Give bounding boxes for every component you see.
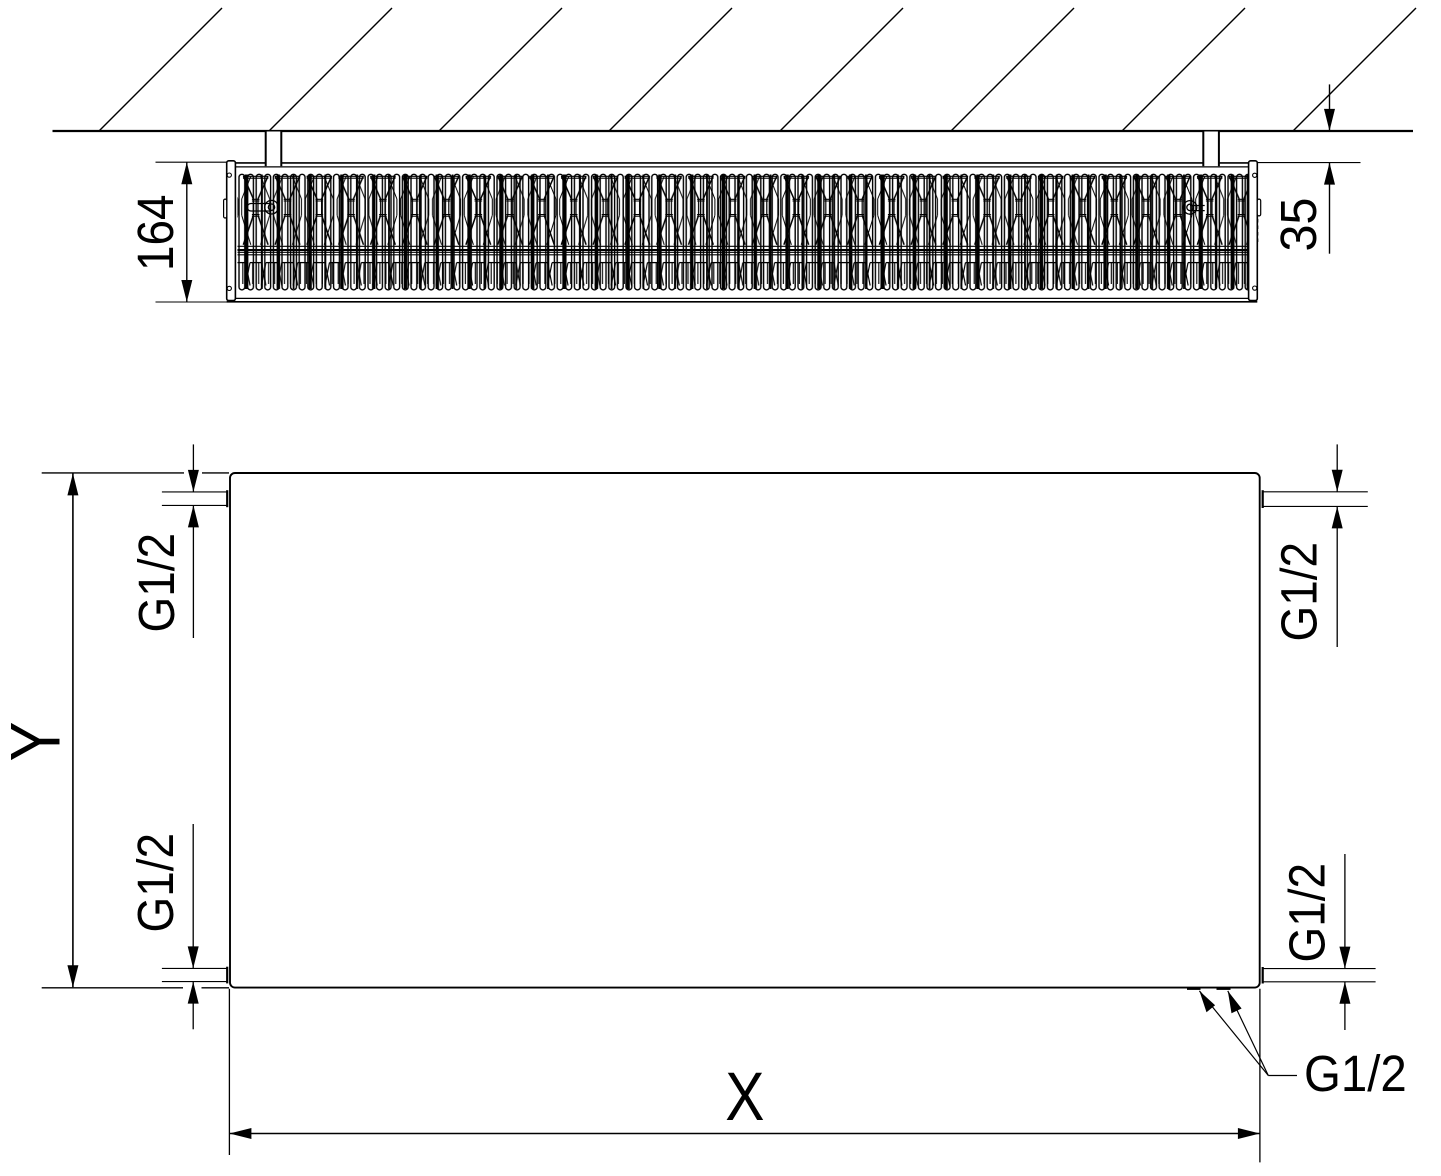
svg-text:G1/2: G1/2 <box>1304 1045 1407 1102</box>
svg-text:G1/2: G1/2 <box>129 533 186 632</box>
svg-text:164: 164 <box>128 194 185 271</box>
svg-text:Y: Y <box>0 722 75 762</box>
svg-text:G1/2: G1/2 <box>1271 542 1328 641</box>
svg-text:G1/2: G1/2 <box>1279 863 1336 962</box>
svg-text:35: 35 <box>1270 198 1327 252</box>
svg-text:X: X <box>725 1057 764 1134</box>
svg-text:G1/2: G1/2 <box>128 833 185 932</box>
